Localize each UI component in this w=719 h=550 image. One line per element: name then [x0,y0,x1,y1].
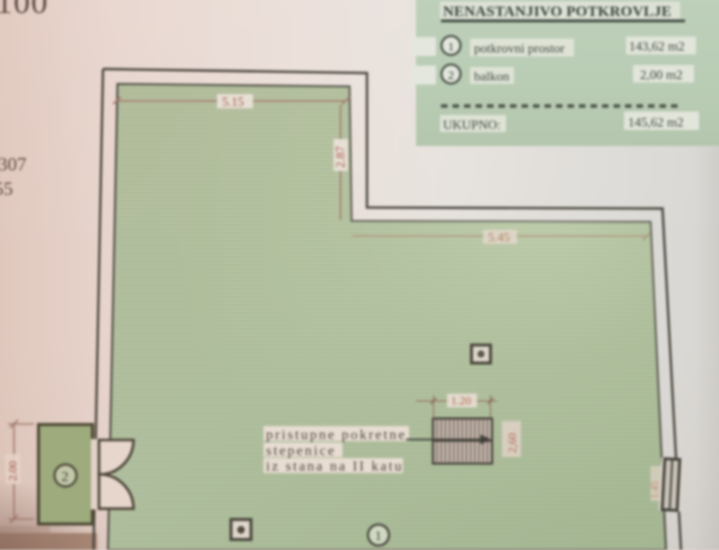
svg-text:2: 2 [448,68,454,82]
svg-text:5.45: 5.45 [488,231,510,245]
svg-text:potkrovni prostor: potkrovni prostor [474,41,565,56]
svg-text:UKUPNO:: UKUPNO: [443,117,501,132]
svg-text:143,62 m2: 143,62 m2 [629,39,685,54]
svg-text:pristupne pokretne: pristupne pokretne [266,428,407,443]
svg-text:iz stana na II katu: iz stana na II katu [266,460,404,475]
svg-text:55: 55 [0,179,13,200]
svg-text:2,00 m2: 2,00 m2 [640,67,683,82]
svg-text:NENASTANJIVO POTKROVLJE: NENASTANJIVO POTKROVLJE [443,4,672,20]
svg-text:1: 1 [375,528,382,543]
svg-text:145,62 m2: 145,62 m2 [628,115,684,130]
svg-text:1.20: 1.20 [451,396,471,408]
svg-text:2: 2 [62,470,69,485]
svg-text:1: 1 [448,40,454,54]
svg-text:2.87: 2.87 [334,146,348,168]
svg-text:5.15: 5.15 [222,95,244,109]
svg-text:stepenice: stepenice [266,444,336,459]
svg-text:307: 307 [0,155,27,176]
svg-text:balkon: balkon [474,69,510,84]
svg-text:1.45: 1.45 [650,481,661,499]
svg-text:100: 100 [0,0,49,21]
svg-text:2.00: 2.00 [8,461,20,481]
svg-text:2,60: 2,60 [507,433,519,453]
